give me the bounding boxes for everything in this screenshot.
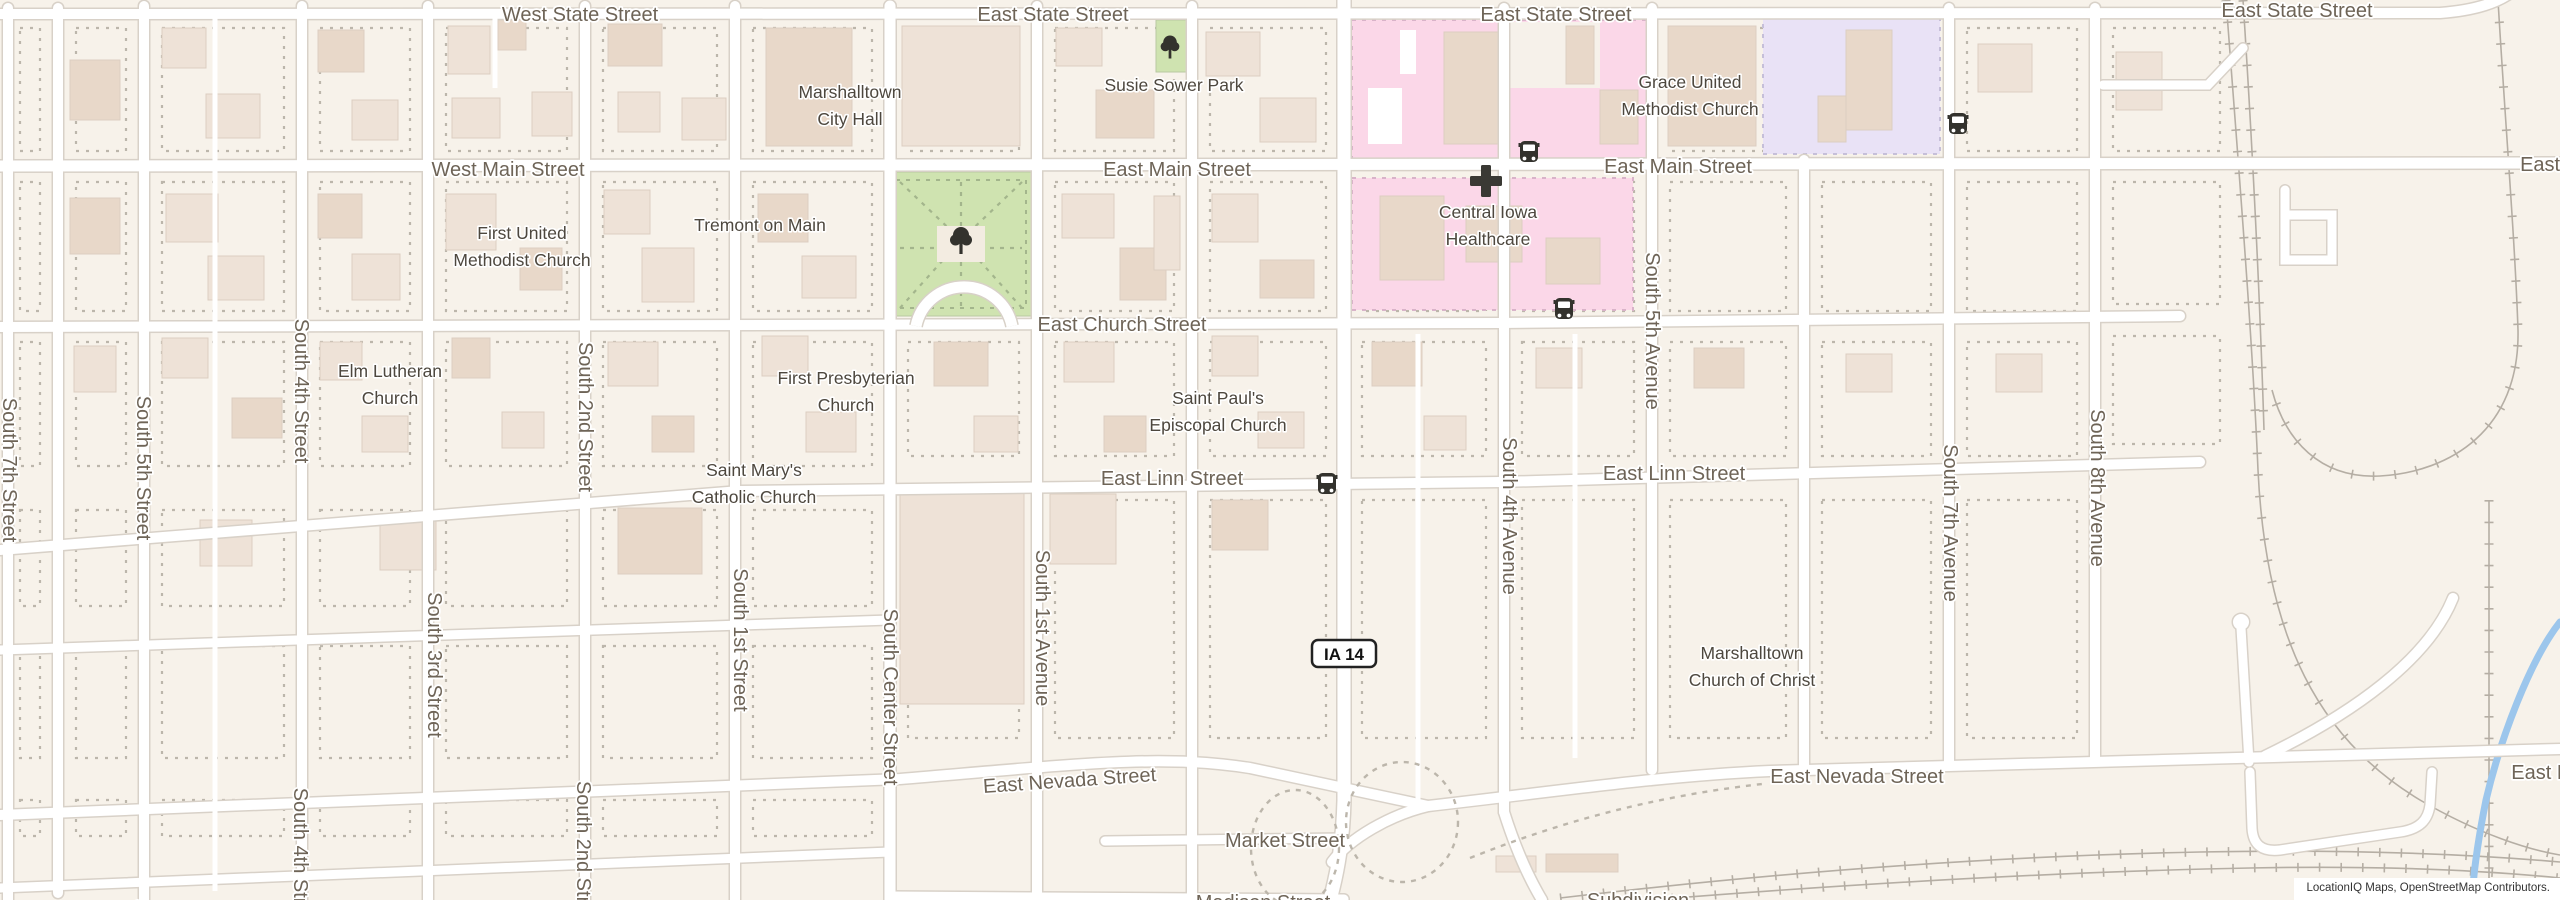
building: [806, 412, 856, 452]
building: [1104, 416, 1146, 452]
building: [1546, 854, 1618, 872]
building: [1064, 342, 1114, 382]
building: [604, 190, 650, 234]
street-label: East State Street: [2221, 0, 2373, 22]
building: [1260, 260, 1314, 298]
building: [1206, 32, 1260, 76]
building: [1062, 194, 1114, 238]
street-label: East Main Street: [1604, 156, 1752, 178]
street-label-vertical: South 1st Street: [729, 568, 751, 712]
map-viewport[interactable]: West State StreetEast State StreetEast S…: [0, 0, 2560, 900]
building: [974, 416, 1018, 452]
poi-label: Tremont on Main: [694, 215, 826, 235]
bus-stop-icon: [1948, 113, 1969, 134]
bus-stop-icon: [1554, 298, 1575, 319]
building: [162, 28, 206, 68]
street-label-vertical: South Center Street: [879, 609, 901, 786]
building: [608, 342, 658, 386]
building: [1260, 98, 1316, 142]
building: [232, 398, 282, 438]
street-label: East Nevada Street: [1770, 766, 1944, 788]
building: [318, 30, 364, 72]
building: [642, 248, 694, 302]
building: [532, 92, 572, 136]
building: [1212, 500, 1268, 550]
building: [352, 254, 400, 300]
building: [1846, 354, 1892, 392]
building: [608, 24, 662, 66]
attribution-text[interactable]: LocationIQ Maps, OpenStreetMap Contribut…: [2306, 882, 2550, 894]
svg-text:IA 14: IA 14: [1324, 645, 1365, 664]
bus-stop-icon: [1317, 473, 1338, 494]
building: [682, 98, 726, 140]
building: [900, 488, 1024, 704]
street-label: East Linn Street: [1603, 463, 1746, 485]
building: [902, 26, 1020, 146]
building: [618, 508, 702, 574]
road: [0, 163, 2560, 166]
building: [1154, 196, 1180, 270]
street-label: East Main Street: [1103, 159, 1251, 181]
street-label: West Main Street: [431, 159, 584, 181]
bus-stop-icon: [1519, 141, 1540, 162]
building: [448, 26, 490, 74]
building: [1978, 44, 2032, 92]
attribution-bar: LocationIQ Maps, OpenStreetMap Contribut…: [2294, 878, 2560, 900]
building: [452, 98, 500, 138]
street-label-vertical: South 7th Avenue: [1939, 444, 1961, 602]
street-label: East Church Street: [1038, 314, 1207, 336]
street-label: West State Street: [502, 4, 659, 26]
building: [1050, 494, 1116, 564]
route-shield-ia-14: IA 14: [1312, 640, 1376, 667]
street-label-vertical: South 4th Street: [289, 788, 311, 900]
building: [1212, 194, 1258, 242]
street-label-vertical: South 5th Avenue: [1641, 252, 1663, 410]
street-label: Subdivision: [1587, 890, 1689, 900]
street-label-vertical: South 4th Avenue: [1498, 437, 1520, 595]
street-label: East Nevada Street: [2511, 762, 2560, 784]
street-label: East State Street: [1480, 4, 1632, 26]
map-canvas[interactable]: West State StreetEast State StreetEast S…: [0, 0, 2560, 900]
building: [1372, 342, 1422, 386]
building: [74, 346, 116, 392]
street-label-vertical: South 2nd Street: [572, 781, 594, 900]
street-label-vertical: South 4th Street: [290, 319, 312, 464]
building: [652, 416, 694, 452]
building: [934, 342, 988, 386]
poi-label: Susie Sower Park: [1104, 75, 1243, 95]
building: [70, 198, 120, 254]
building: [618, 92, 660, 132]
building: [1694, 348, 1744, 388]
street-label: East Main Street: [2520, 154, 2560, 176]
building: [70, 60, 120, 120]
building: [1996, 354, 2042, 392]
building: [162, 338, 208, 378]
building: [1212, 336, 1258, 376]
building: [1056, 28, 1102, 66]
street-label-vertical: South 7th Street: [0, 398, 20, 543]
street-label-vertical: South 3rd Street: [423, 592, 445, 738]
building: [362, 416, 408, 452]
street-label: Market Street: [1225, 830, 1345, 852]
building: [1096, 90, 1154, 138]
street-label-vertical: South 8th Avenue: [2086, 409, 2108, 567]
building: [166, 194, 218, 242]
building: [452, 338, 490, 378]
building: [352, 100, 398, 140]
street-label-vertical: South 2nd Street: [574, 342, 596, 493]
street-label-vertical: South 1st Avenue: [1031, 550, 1053, 706]
street-label: Madison Street: [1196, 892, 1331, 900]
street-label: East State Street: [977, 4, 1129, 26]
building: [802, 256, 856, 298]
building: [502, 412, 544, 448]
street-label-vertical: South 5th Street: [132, 396, 154, 541]
building: [318, 194, 362, 238]
street-label: East Linn Street: [1101, 468, 1244, 490]
building: [1424, 416, 1466, 450]
